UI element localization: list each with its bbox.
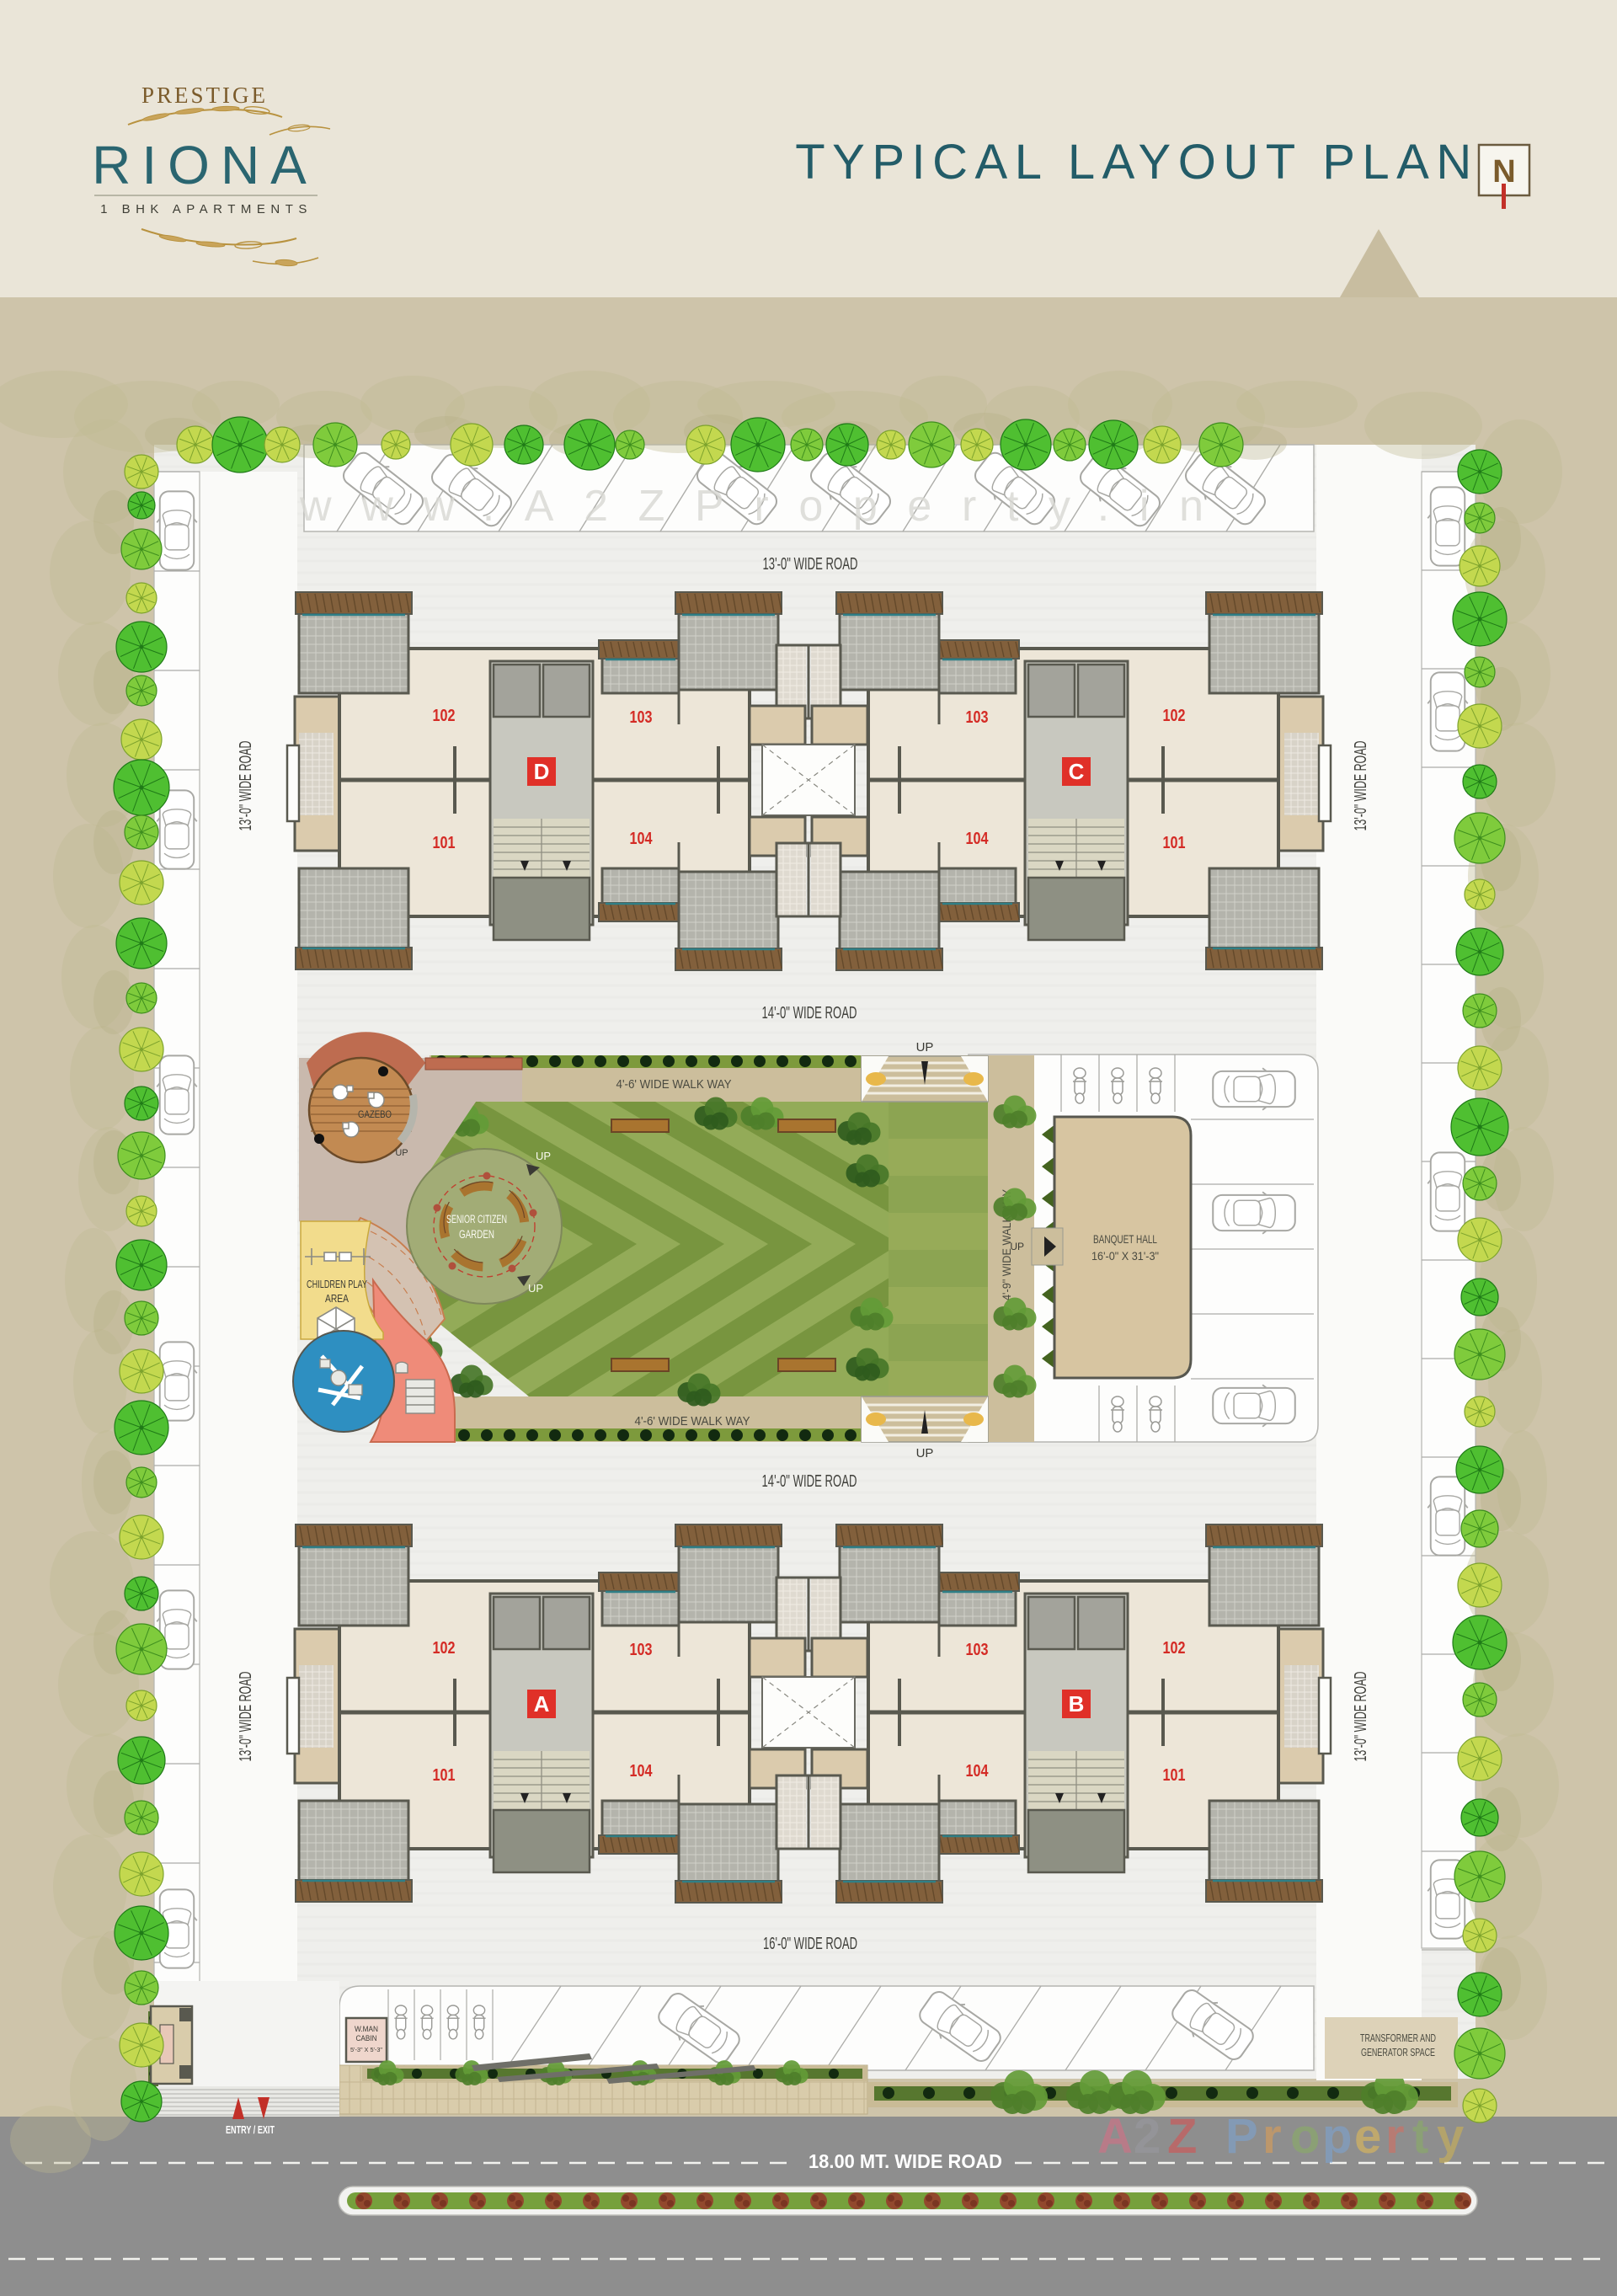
svg-text:D: D	[534, 759, 550, 784]
svg-text:104: 104	[966, 830, 990, 848]
svg-text:P: P	[1225, 2109, 1258, 2164]
svg-text:1 BHK APARTMENTS: 1 BHK APARTMENTS	[100, 202, 312, 216]
svg-text:5'-3" X 5'-3": 5'-3" X 5'-3"	[350, 2046, 382, 2053]
svg-text:UP: UP	[1010, 1241, 1024, 1252]
svg-text:102: 102	[1163, 707, 1186, 725]
svg-text:UP: UP	[536, 1150, 551, 1162]
svg-text:13'-0" WIDE ROAD: 13'-0" WIDE ROAD	[763, 555, 858, 574]
svg-text:16'-0" WIDE ROAD: 16'-0" WIDE ROAD	[763, 1935, 857, 1953]
svg-text:103: 103	[630, 1641, 653, 1659]
svg-text:A: A	[1097, 2109, 1133, 2164]
svg-text:18.00 MT. WIDE ROAD: 18.00 MT. WIDE ROAD	[808, 2150, 1002, 2172]
svg-text:102: 102	[433, 707, 456, 725]
svg-text:13'-0" WIDE ROAD: 13'-0" WIDE ROAD	[1352, 1672, 1370, 1762]
svg-text:TYPICAL LAYOUT PLAN: TYPICAL LAYOUT PLAN	[795, 135, 1479, 190]
svg-text:14'-0" WIDE ROAD: 14'-0" WIDE ROAD	[762, 1004, 857, 1023]
svg-text:2: 2	[1134, 2109, 1161, 2164]
svg-text:SENIOR CITIZEN: SENIOR CITIZEN	[446, 1213, 507, 1225]
svg-text:A: A	[534, 1691, 550, 1717]
svg-text:y: y	[1437, 2109, 1464, 2164]
svg-text:B: B	[1069, 1691, 1085, 1717]
svg-text:UP: UP	[528, 1282, 543, 1295]
svg-text:p: p	[1322, 2109, 1352, 2164]
svg-text:UP: UP	[916, 1040, 934, 1055]
svg-text:TRANSFORMER AND: TRANSFORMER AND	[1360, 2032, 1436, 2044]
svg-text:13'-0" WIDE ROAD: 13'-0" WIDE ROAD	[1352, 741, 1370, 831]
svg-text:GARDEN: GARDEN	[459, 1228, 494, 1241]
svg-text:103: 103	[966, 708, 989, 727]
svg-text:W.MAN: W.MAN	[355, 2025, 378, 2033]
svg-text:AREA: AREA	[325, 1293, 350, 1305]
svg-text:104: 104	[630, 830, 654, 848]
svg-text:101: 101	[1163, 834, 1186, 852]
svg-text:ENTRY / EXIT: ENTRY / EXIT	[226, 2123, 275, 2136]
svg-text:4'-6' WIDE WALK WAY: 4'-6' WIDE WALK WAY	[616, 1077, 732, 1092]
svg-text:101: 101	[433, 834, 456, 852]
svg-text:C: C	[1069, 759, 1085, 784]
svg-text:PRESTIGE: PRESTIGE	[141, 83, 268, 108]
svg-text:GENERATOR SPACE: GENERATOR SPACE	[1361, 2047, 1435, 2058]
svg-text:102: 102	[1163, 1639, 1186, 1658]
svg-text:102: 102	[433, 1639, 456, 1658]
svg-text:RIONA: RIONA	[92, 135, 318, 195]
svg-text:104: 104	[630, 1762, 654, 1781]
svg-text:GAZEBO: GAZEBO	[358, 1110, 392, 1120]
svg-text:BANQUET HALL: BANQUET HALL	[1093, 1232, 1157, 1246]
svg-text:103: 103	[966, 1641, 989, 1659]
svg-text:104: 104	[966, 1762, 990, 1781]
svg-text:CHILDREN PLAY: CHILDREN PLAY	[307, 1279, 367, 1290]
svg-text:UP: UP	[916, 1446, 934, 1460]
svg-text:13'-0" WIDE ROAD: 13'-0" WIDE ROAD	[237, 741, 255, 831]
svg-text:13'-0" WIDE ROAD: 13'-0" WIDE ROAD	[237, 1672, 255, 1762]
svg-text:CABIN: CABIN	[356, 2034, 377, 2042]
svg-text:Z: Z	[1167, 2109, 1197, 2164]
svg-text:16'-0" X 31'-3": 16'-0" X 31'-3"	[1091, 1249, 1159, 1263]
svg-text:e: e	[1354, 2109, 1381, 2164]
svg-text:4'-6' WIDE WALK WAY: 4'-6' WIDE WALK WAY	[635, 1414, 750, 1428]
svg-text:101: 101	[1163, 1766, 1186, 1785]
svg-text:r: r	[1262, 2109, 1282, 2164]
svg-text:r: r	[1385, 2109, 1405, 2164]
svg-text:t: t	[1412, 2109, 1428, 2164]
svg-text:o: o	[1290, 2109, 1320, 2164]
svg-text:UP: UP	[395, 1148, 408, 1158]
svg-text:101: 101	[433, 1766, 456, 1785]
svg-text:103: 103	[630, 708, 653, 727]
svg-text:14'-0" WIDE ROAD: 14'-0" WIDE ROAD	[762, 1472, 857, 1491]
